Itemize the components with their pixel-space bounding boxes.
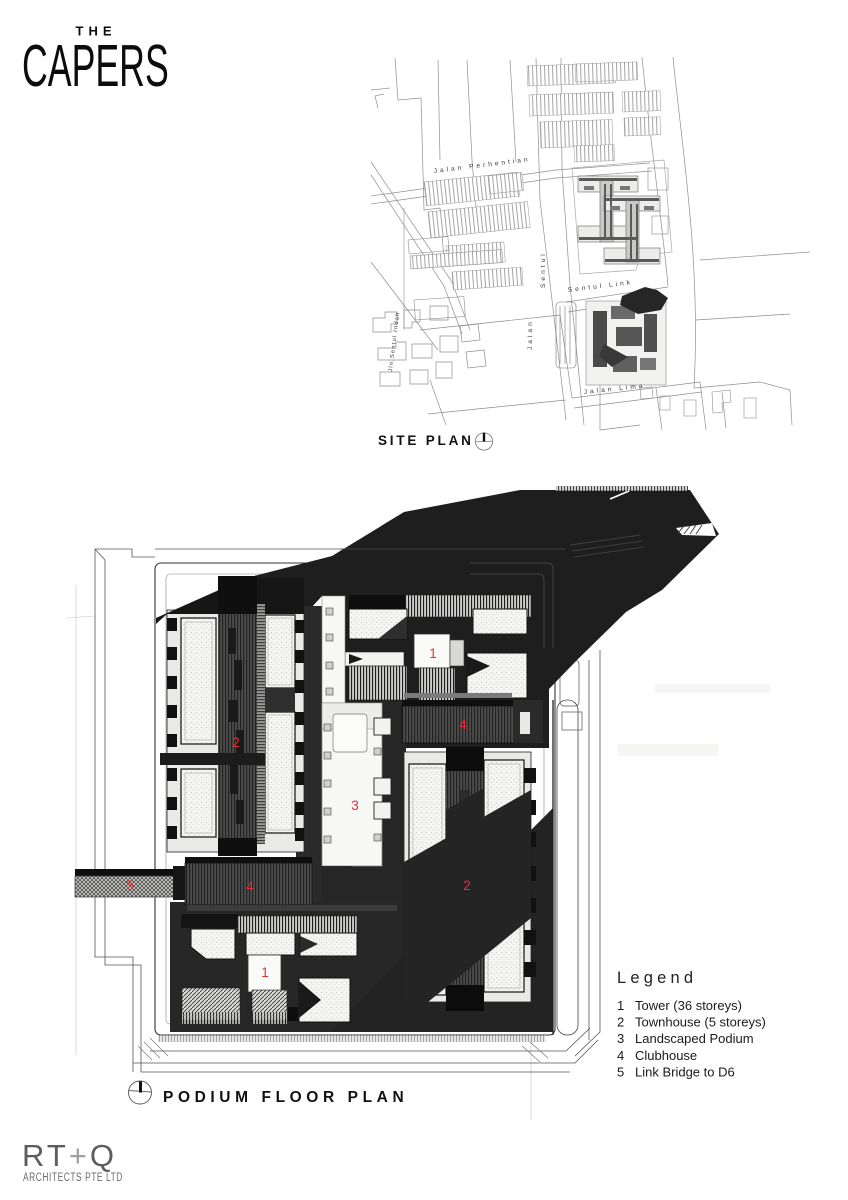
svg-text:2: 2 bbox=[617, 1015, 624, 1030]
svg-text:1: 1 bbox=[617, 998, 624, 1013]
svg-text:Clubhouse: Clubhouse bbox=[635, 1048, 697, 1063]
svg-text:RT+Q: RT+Q bbox=[22, 1138, 117, 1173]
svg-text:Landscaped Podium: Landscaped Podium bbox=[635, 1031, 754, 1046]
svg-text:1: 1 bbox=[429, 646, 437, 661]
svg-text:2: 2 bbox=[463, 878, 471, 893]
svg-text:4: 4 bbox=[246, 879, 254, 894]
svg-text:ARCHITECTS PTE LTD: ARCHITECTS PTE LTD bbox=[23, 1172, 123, 1185]
svg-text:PODIUM FLOOR PLAN: PODIUM FLOOR PLAN bbox=[163, 1089, 408, 1106]
svg-text:4: 4 bbox=[459, 717, 467, 732]
svg-text:CAPERS: CAPERS bbox=[22, 34, 169, 99]
svg-text:Sentul: Sentul bbox=[540, 251, 547, 288]
svg-text:Link Bridge to D6: Link Bridge to D6 bbox=[635, 1064, 735, 1079]
svg-text:3: 3 bbox=[351, 798, 359, 813]
svg-text:5: 5 bbox=[617, 1064, 624, 1079]
svg-text:5: 5 bbox=[126, 878, 134, 893]
svg-text:4: 4 bbox=[617, 1048, 624, 1063]
svg-text:2: 2 bbox=[232, 735, 240, 750]
svg-text:3: 3 bbox=[617, 1031, 624, 1046]
svg-text:Townhouse (5 storeys): Townhouse (5 storeys) bbox=[635, 1015, 766, 1030]
svg-text:Tower (36 storeys): Tower (36 storeys) bbox=[635, 998, 742, 1013]
svg-text:Jalan: Jalan bbox=[527, 319, 534, 350]
svg-text:Legend: Legend bbox=[617, 969, 697, 987]
svg-text:SITE PLAN: SITE PLAN bbox=[378, 433, 474, 448]
svg-text:1: 1 bbox=[261, 965, 269, 980]
